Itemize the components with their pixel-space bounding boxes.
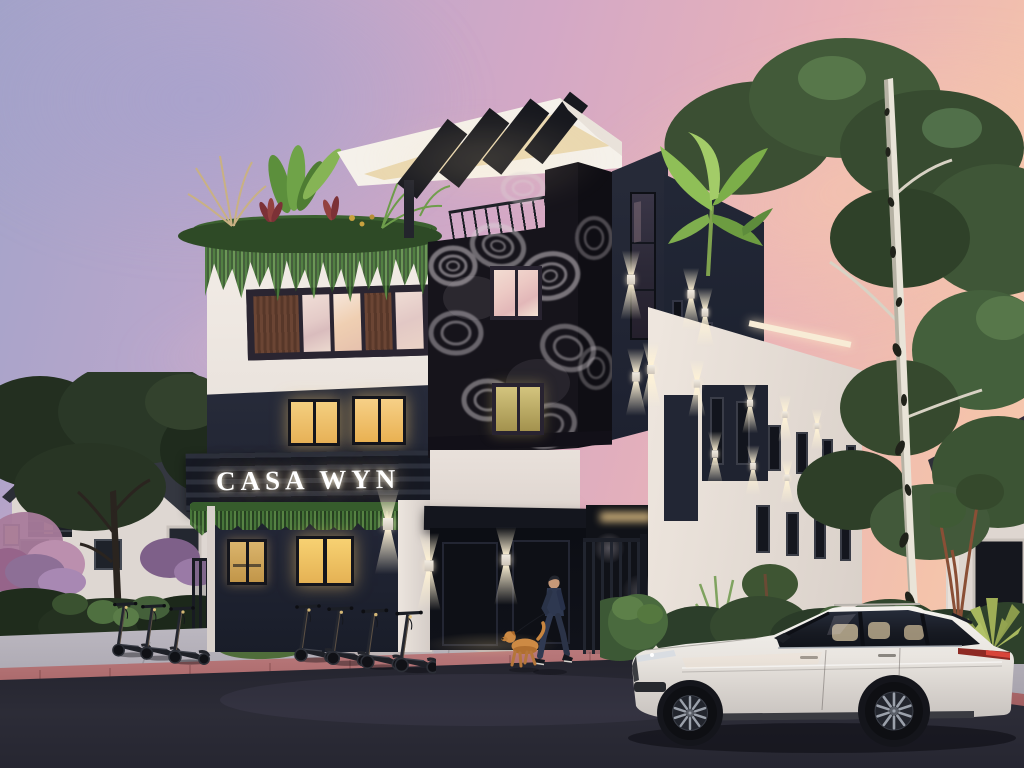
scooter-group-left — [113, 602, 209, 665]
pedestrian-with-dog — [498, 566, 582, 680]
suv-wheel-front — [663, 686, 717, 740]
ribbon-window-third-floor — [246, 284, 431, 360]
garage-door-left — [442, 542, 498, 646]
lit-window-gf-left — [227, 539, 267, 585]
scene-dusk-rendering: CASA WYN — [0, 0, 1024, 768]
pergola-glow — [360, 110, 610, 210]
lit-window-gf-right — [296, 536, 354, 586]
tower-lower-white — [430, 450, 580, 514]
wood-panel — [253, 295, 300, 353]
mural-window-lower — [492, 383, 544, 435]
sign-greenery-top — [190, 502, 430, 511]
glass-panel — [395, 292, 424, 350]
lit-window-2f-right — [352, 396, 406, 445]
pampas-grass — [188, 156, 266, 226]
lit-window-2f-left — [288, 399, 340, 446]
building-sign-text: CASA WYN — [216, 464, 401, 498]
glass-panel-bright — [333, 293, 362, 351]
man-walking — [533, 576, 573, 665]
scooter-row — [100, 580, 436, 676]
suv-wheel-rear — [865, 682, 923, 740]
glass-panel — [302, 294, 331, 352]
scooter-group-right — [295, 604, 436, 673]
banana-plants — [648, 126, 778, 276]
wood-panel — [364, 293, 393, 351]
white-suv — [622, 592, 1024, 768]
mural-window-upper — [490, 266, 542, 320]
suv-front-intake — [634, 682, 666, 692]
